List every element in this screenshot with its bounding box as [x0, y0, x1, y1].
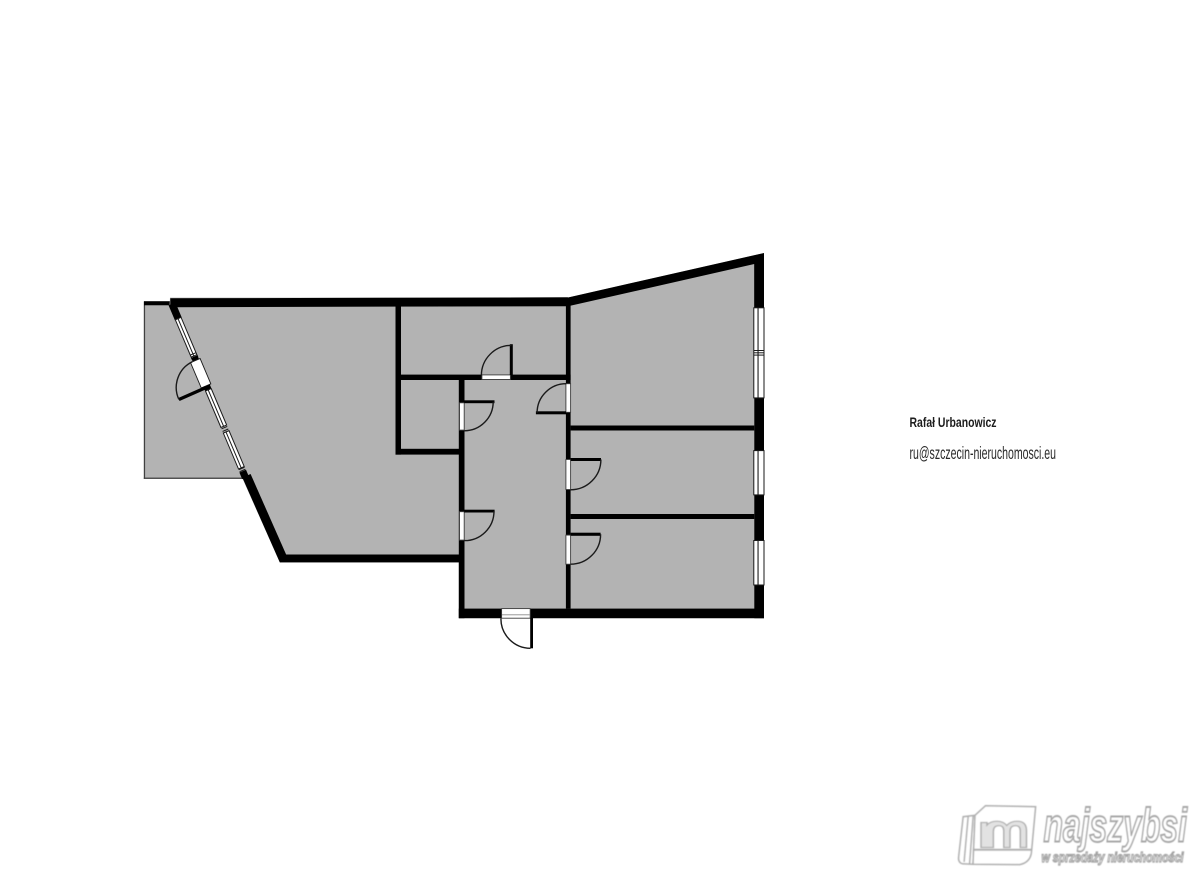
svg-text:ru@szczecin-nieruchomosci.eu: ru@szczecin-nieruchomosci.eu — [910, 443, 1057, 463]
svg-text:Rafał Urbanowicz: Rafał Urbanowicz — [910, 414, 997, 430]
svg-text:w sprzedaży nieruchomości: w sprzedaży nieruchomości — [1042, 850, 1184, 865]
svg-text:najszybsi: najszybsi — [1044, 798, 1188, 851]
